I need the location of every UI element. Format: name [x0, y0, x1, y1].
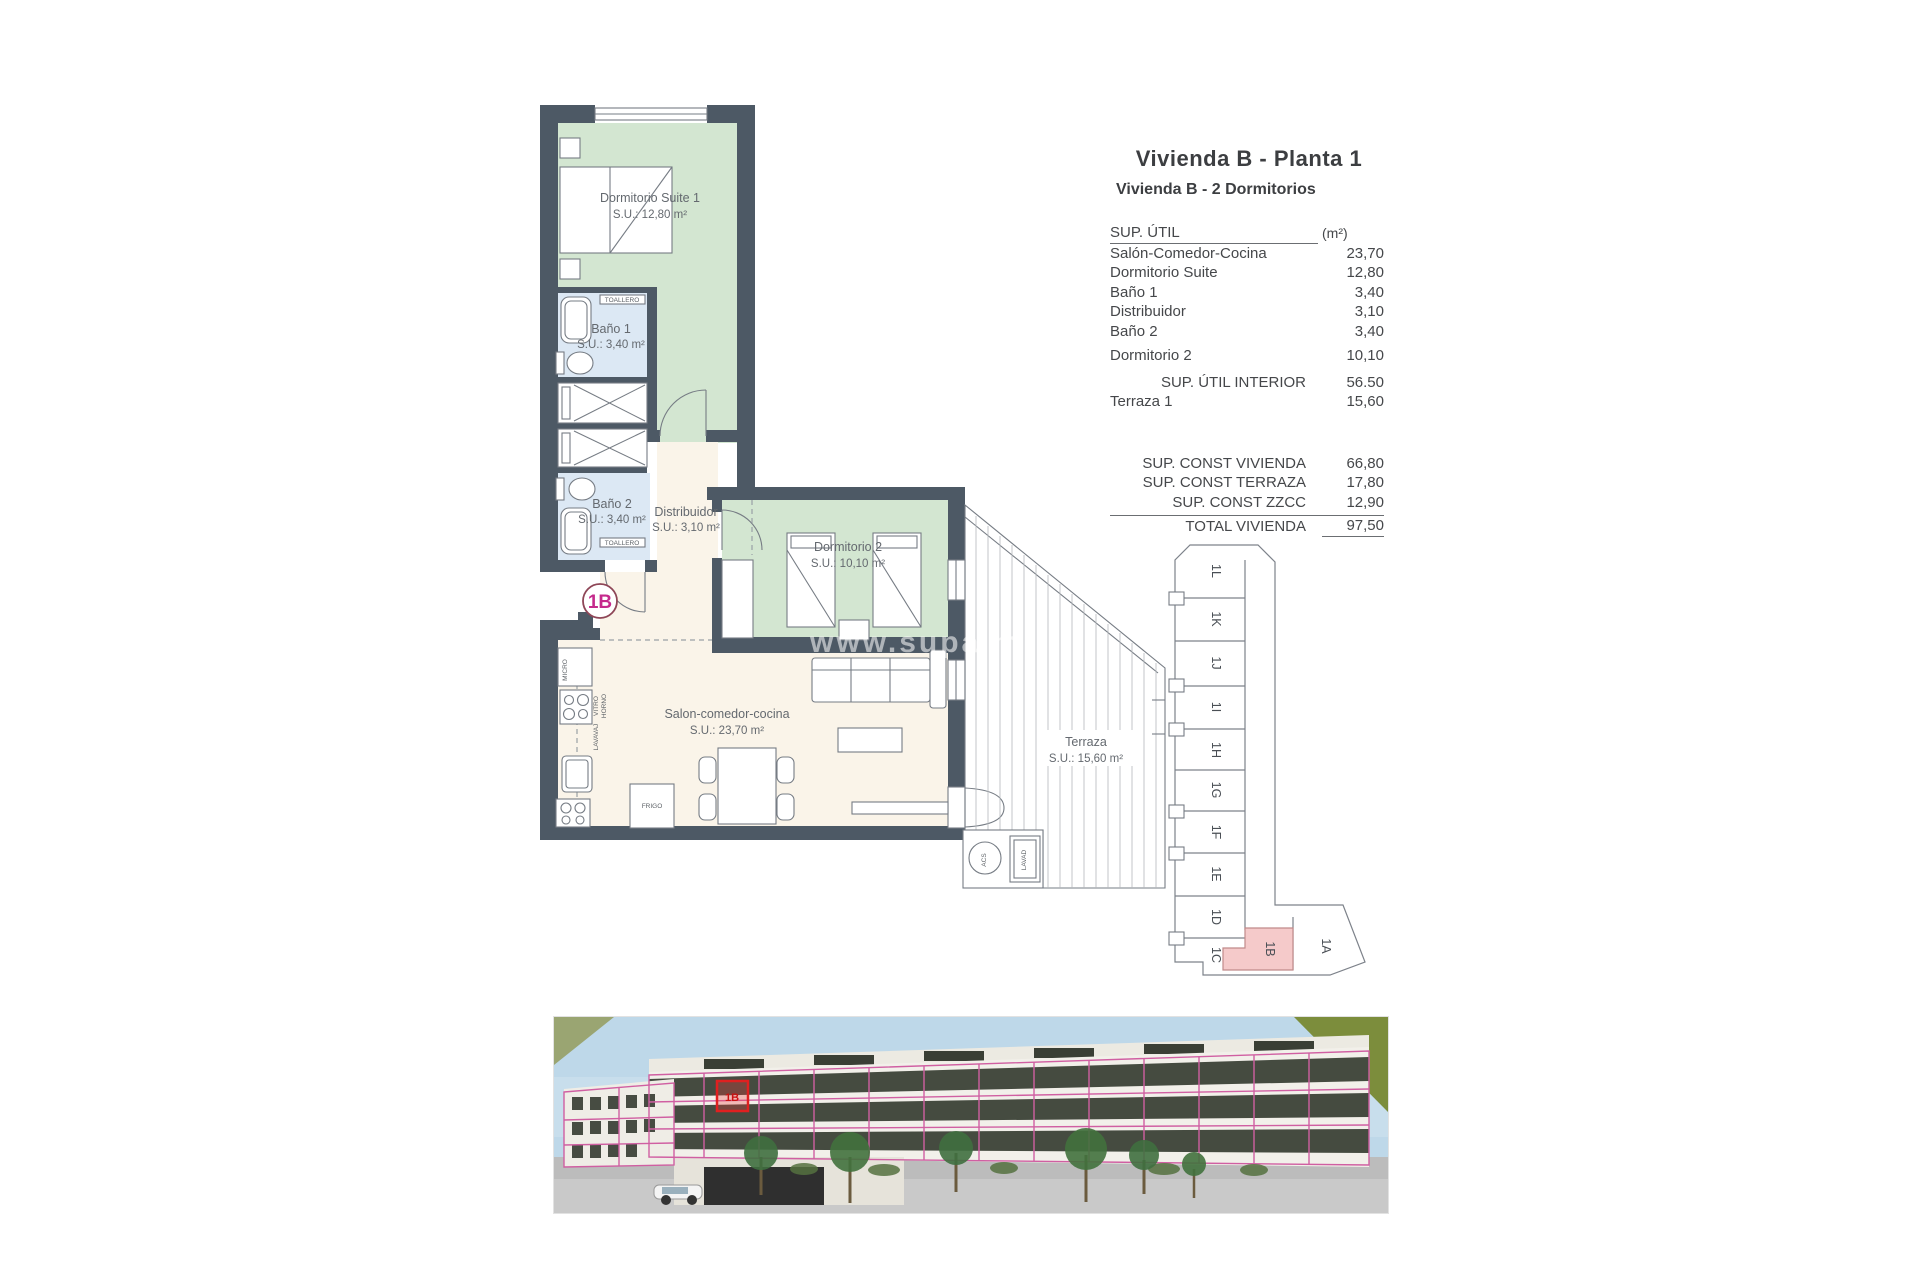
- floorplan-sheet: Vivienda B - Planta 1 Vivienda B - 2 Dor…: [0, 0, 1920, 1280]
- distribuidor-name: Distribuidor: [654, 505, 717, 519]
- terraza-name: Terraza: [1065, 735, 1107, 749]
- keyplan-unit-label: 1D: [1209, 909, 1223, 925]
- building-render-photo: 1B: [553, 1016, 1389, 1214]
- distribuidor-area: S.U.: 3,10 m²: [652, 522, 720, 534]
- micro-label: MICRO: [562, 659, 569, 681]
- watermark: www.supalm: [809, 626, 1022, 659]
- toallero-label: TOALLERO: [605, 540, 640, 547]
- keyplan-unit-label: 1E: [1209, 866, 1223, 881]
- unit-badge: 1B: [583, 584, 617, 618]
- vitro-label: VITRO: [593, 696, 600, 716]
- bano1-area: S.U.: 3,40 m²: [577, 339, 645, 351]
- bano2-name: Baño 2: [592, 497, 632, 511]
- keyplan-unit-label: 1J: [1209, 656, 1223, 669]
- suite-name: Dormitorio Suite 1: [600, 191, 700, 205]
- terrace: Terraza S.U.: 15,60 m² ACS LAVAD: [963, 505, 1165, 888]
- keyplan-unit-1a-label: 1A: [1319, 938, 1333, 954]
- keyplan-unit-1b-highlight: [1223, 928, 1293, 970]
- dorm2-name: Dormitorio 2: [814, 540, 882, 554]
- bano1-name: Baño 1: [591, 322, 631, 336]
- acs-label: ACS: [981, 853, 988, 867]
- lavad-label: LAVAD: [1021, 850, 1028, 871]
- roof-glass: [924, 1051, 984, 1061]
- unit-highlight-1b: 1B: [717, 1081, 748, 1111]
- keyplan-unit-label: 1C: [1209, 947, 1223, 963]
- horno-label: HORNO: [601, 694, 608, 718]
- roof-glass: [814, 1055, 874, 1065]
- roof-glass: [1034, 1048, 1094, 1058]
- keyplan-unit-label: 1L: [1209, 564, 1223, 578]
- roof-glass: [704, 1059, 764, 1069]
- unit-badge-label: 1B: [588, 592, 612, 613]
- floor-plan: TOALLERO TOALLERO: [530, 90, 1400, 1010]
- unit-highlight-label: 1B: [725, 1092, 739, 1104]
- terraza-area: S.U.: 15,60 m²: [1049, 753, 1123, 765]
- toallero-label: TOALLERO: [605, 297, 640, 304]
- bano2-area: S.U.: 3,40 m²: [578, 514, 646, 526]
- suite-area: S.U.: 12,80 m²: [613, 209, 687, 221]
- key-plan: 1L 1K 1J 1I 1H 1G 1F 1E 1D 1C 1B 1A: [1169, 545, 1365, 975]
- keyplan-unit-label: 1G: [1209, 782, 1223, 799]
- keyplan-unit-1b-label: 1B: [1263, 941, 1277, 956]
- frigo-label: FRIGO: [642, 803, 663, 810]
- keyplan-unit-label: 1I: [1209, 702, 1223, 712]
- keyplan-unit-label: 1K: [1209, 611, 1223, 627]
- lavavaj-label: LAVAVAJ: [593, 724, 600, 751]
- keyplan-unit-label: 1F: [1209, 825, 1223, 840]
- dorm2-area: S.U.: 10,10 m²: [811, 558, 885, 570]
- salon-name: Salon-comedor-cocina: [664, 707, 789, 721]
- roof-glass: [1144, 1044, 1204, 1054]
- salon-area: S.U.: 23,70 m²: [690, 725, 764, 737]
- keyplan-unit-label: 1H: [1209, 742, 1223, 758]
